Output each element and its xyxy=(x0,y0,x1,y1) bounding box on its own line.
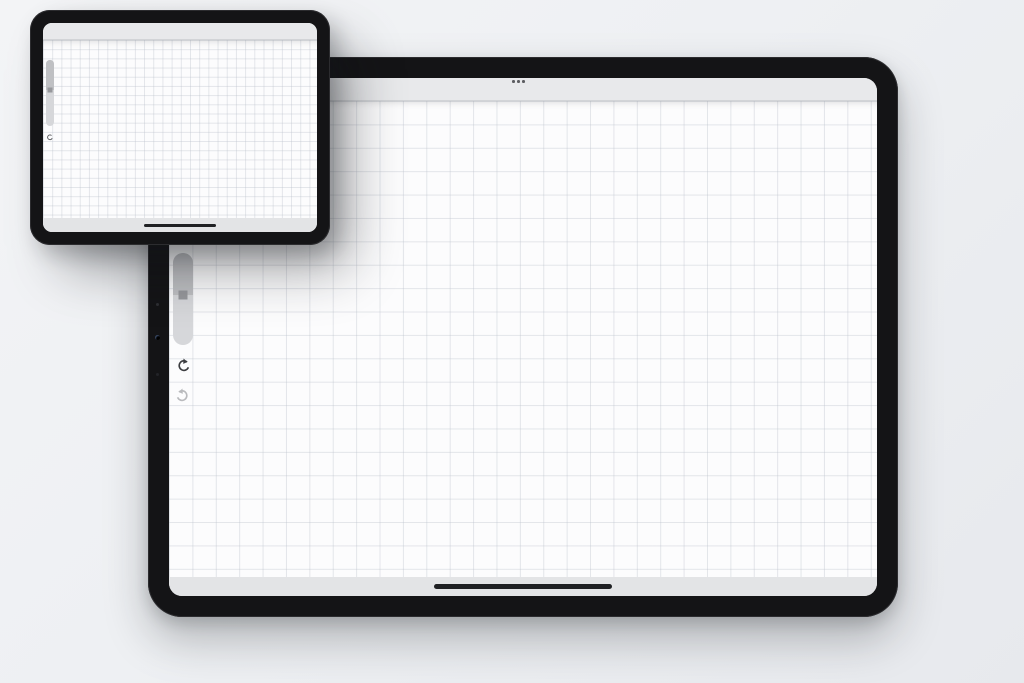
home-indicator-before[interactable] xyxy=(144,224,216,227)
brush-size-slider-small[interactable] xyxy=(46,60,54,126)
sidebar-before xyxy=(44,60,55,142)
ellipsis-menu-icon[interactable] xyxy=(512,80,525,83)
drawing-canvas-before[interactable] xyxy=(43,40,317,218)
floorplan-before-drawing xyxy=(43,40,317,218)
brush-size-slider[interactable] xyxy=(173,253,193,345)
undo-button[interactable] xyxy=(174,357,192,375)
procreate-toolbar-before xyxy=(43,23,317,40)
undo-button-small[interactable] xyxy=(45,133,54,142)
home-indicator-after[interactable] xyxy=(434,584,612,589)
ambient-sensor xyxy=(156,303,159,306)
tablet-before xyxy=(30,10,330,245)
front-camera xyxy=(155,335,160,340)
mic-dot xyxy=(156,373,159,376)
screen-before xyxy=(43,23,317,232)
sidebar-after xyxy=(171,253,195,405)
bottom-strip-before xyxy=(43,218,317,232)
redo-button[interactable] xyxy=(174,387,192,405)
stage xyxy=(0,0,1024,683)
bottom-strip-after xyxy=(169,577,877,596)
